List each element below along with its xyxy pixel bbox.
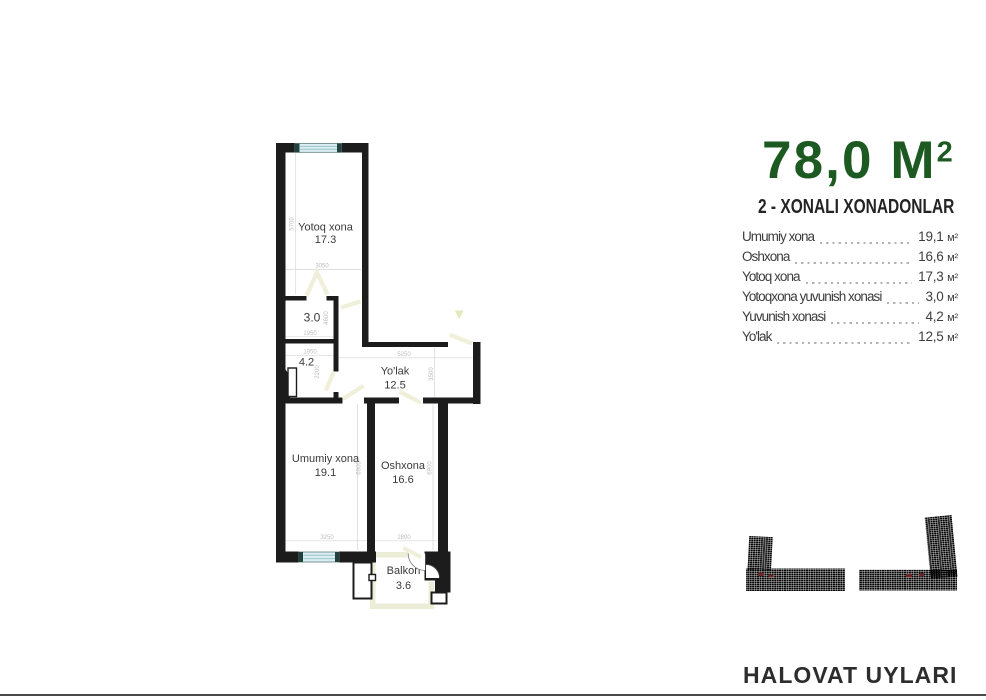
svg-text:3.6: 3.6 bbox=[396, 580, 411, 592]
svg-text:1950: 1950 bbox=[303, 350, 317, 356]
svg-text:Oshxona: Oshxona bbox=[381, 460, 426, 472]
svg-text:3.0: 3.0 bbox=[304, 311, 321, 325]
svg-text:3250: 3250 bbox=[320, 535, 334, 541]
svg-text:4600: 4600 bbox=[324, 311, 330, 325]
svg-text:2200: 2200 bbox=[315, 365, 321, 379]
svg-text:16.6: 16.6 bbox=[392, 474, 413, 486]
svg-text:6900: 6900 bbox=[428, 461, 434, 475]
svg-text:Umumiy xona: Umumiy xona bbox=[292, 453, 360, 465]
svg-text:Yo'lak: Yo'lak bbox=[381, 366, 410, 378]
svg-text:5250: 5250 bbox=[397, 352, 411, 358]
svg-text:3500: 3500 bbox=[429, 367, 435, 381]
svg-text:2800: 2800 bbox=[397, 535, 411, 541]
svg-text:5700: 5700 bbox=[290, 217, 296, 231]
svg-text:Yotoq xona: Yotoq xona bbox=[298, 222, 354, 234]
svg-text:12.5: 12.5 bbox=[384, 380, 405, 392]
svg-text:1950: 1950 bbox=[303, 331, 317, 337]
svg-text:4.2: 4.2 bbox=[299, 357, 314, 369]
svg-text:17.3: 17.3 bbox=[315, 234, 336, 246]
svg-text:19.1: 19.1 bbox=[315, 467, 336, 479]
